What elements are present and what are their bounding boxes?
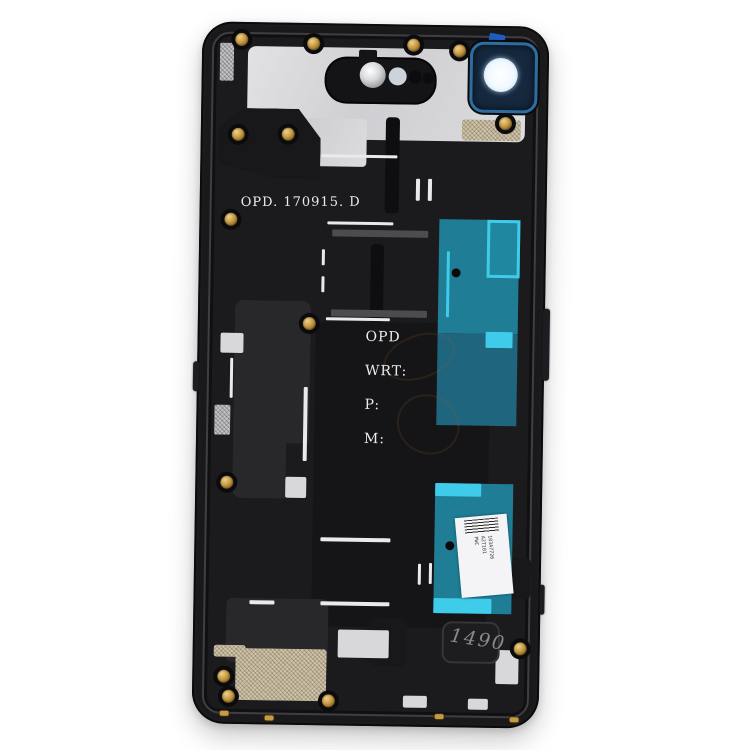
camera-key-bump xyxy=(539,585,544,615)
screw xyxy=(303,317,316,330)
gold-contact xyxy=(510,717,519,722)
molding-channel-1 xyxy=(385,117,401,213)
gold-contact xyxy=(435,714,444,719)
paint-tick xyxy=(230,358,234,398)
antenna-contact-mesh-top-left xyxy=(220,43,235,81)
spec-line-wrt: WRT: xyxy=(365,354,408,389)
adhesive-hole-lower xyxy=(445,541,454,550)
sticker-text: 103A7726 A2T101 PWC xyxy=(472,535,495,561)
speaker-mesh xyxy=(235,648,327,701)
solder-bar xyxy=(332,229,428,238)
screw xyxy=(514,642,527,655)
handwritten-code-plate: 1490 xyxy=(441,621,500,664)
spec-text-block: OPD WRT: P: M: xyxy=(364,320,408,457)
thermal-pad xyxy=(468,699,488,710)
phone-rear-housing: 103A7726 A2T101 PWC xyxy=(192,21,550,728)
thermal-pad xyxy=(220,333,243,353)
handwritten-code: 1490 xyxy=(448,624,507,654)
thermal-pad xyxy=(403,696,427,708)
screw xyxy=(220,476,233,489)
date-code-text: OPD. 170915. D xyxy=(241,195,361,210)
camera-hole-small xyxy=(409,71,422,84)
gold-contact xyxy=(265,715,274,720)
screw xyxy=(499,117,512,130)
screw xyxy=(322,694,335,707)
sticker-line-1: 103A7726 xyxy=(486,535,495,560)
paint-tick xyxy=(321,276,324,292)
paint-tick xyxy=(418,564,421,585)
sticker-barcode xyxy=(464,517,499,534)
paint-tick xyxy=(416,179,420,201)
thermal-pad xyxy=(285,477,306,498)
antenna-contact-mesh-left xyxy=(214,405,230,435)
solder-bar xyxy=(331,309,427,318)
adhesive-accent-frame xyxy=(487,220,521,279)
qc-sticker: 103A7726 A2T101 PWC xyxy=(455,514,514,598)
thermal-pad xyxy=(338,630,389,659)
gold-contact xyxy=(220,711,229,716)
paint-tick xyxy=(429,563,432,584)
paint-tick xyxy=(322,249,325,265)
spec-line-opd: OPD xyxy=(365,320,408,355)
power-button-bump xyxy=(542,309,550,381)
paint-tick xyxy=(428,179,432,201)
screw xyxy=(232,128,245,141)
adhesive-accent-bottom xyxy=(433,598,491,614)
left-side-tab xyxy=(193,361,199,391)
adhesive-hole-upper xyxy=(452,268,461,277)
screw xyxy=(222,690,235,703)
camera-bracket-tab xyxy=(359,50,377,62)
spec-line-p: P: xyxy=(364,388,407,423)
antenna-contact-mesh-top-right xyxy=(462,119,521,141)
camera-hole-small-2 xyxy=(423,73,434,84)
paint-dash xyxy=(249,600,274,604)
spec-line-m: M: xyxy=(364,422,407,457)
adhesive-accent-top-lower xyxy=(435,483,481,497)
adhesive-accent-band xyxy=(485,332,512,348)
screw xyxy=(217,670,230,683)
screw xyxy=(407,39,420,52)
